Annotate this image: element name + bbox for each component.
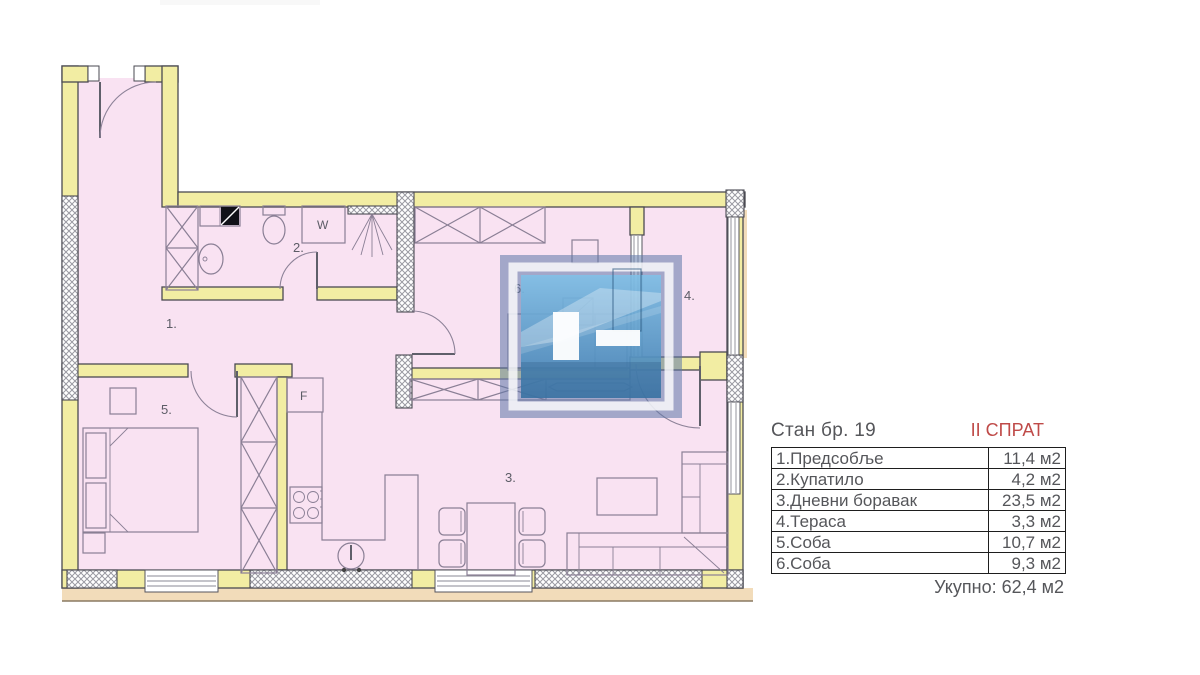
room-area: 3,3 м2 <box>989 511 1066 532</box>
shower <box>348 206 397 214</box>
fridge-label: F <box>300 389 307 403</box>
washer-label: W <box>317 218 329 232</box>
room-name: 3.Дневни боравак <box>772 490 989 511</box>
room-label-living: 3. <box>505 470 516 485</box>
page: 1. 2. 3. 4. 5. 6. W F Стан бр. 19 II СПР… <box>0 0 1200 675</box>
area-row: 5.Соба 10,7 м2 <box>772 532 1066 553</box>
room-name: 2.Купатило <box>772 469 989 490</box>
room-area: 23,5 м2 <box>989 490 1066 511</box>
area-row: 3.Дневни боравак 23,5 м2 <box>772 490 1066 511</box>
total-area: Укупно: 62,4 м2 <box>771 577 1066 598</box>
room-label-hall: 1. <box>166 316 177 331</box>
room-area: 9,3 м2 <box>989 553 1066 574</box>
room-name: 1.Предсобље <box>772 448 989 469</box>
apartment-title: Стан бр. 19 <box>771 420 876 442</box>
area-table: 1.Предсобље 11,4 м2 2.Купатило 4,2 м2 3.… <box>771 447 1066 574</box>
room-area: 4,2 м2 <box>989 469 1066 490</box>
panel-header: Стан бр. 19 II СПРАТ <box>771 420 1066 446</box>
apartment-info-panel: Стан бр. 19 II СПРАТ 1.Предсобље 11,4 м2… <box>771 420 1066 598</box>
room-name: 4.Тераса <box>772 511 989 532</box>
area-row: 2.Купатило 4,2 м2 <box>772 469 1066 490</box>
room-area: 10,7 м2 <box>989 532 1066 553</box>
watermark-logo <box>500 255 682 418</box>
room-name: 6.Соба <box>772 553 989 574</box>
room-name: 5.Соба <box>772 532 989 553</box>
room-area: 11,4 м2 <box>989 448 1066 469</box>
room-label-bedroom5: 5. <box>161 402 172 417</box>
room-label-bathroom: 2. <box>293 240 304 255</box>
floor-badge: II СПРАТ <box>971 420 1066 441</box>
area-row: 1.Предсобље 11,4 м2 <box>772 448 1066 469</box>
area-row: 6.Соба 9,3 м2 <box>772 553 1066 574</box>
room-label-terrace: 4. <box>684 288 695 303</box>
area-row: 4.Тераса 3,3 м2 <box>772 511 1066 532</box>
